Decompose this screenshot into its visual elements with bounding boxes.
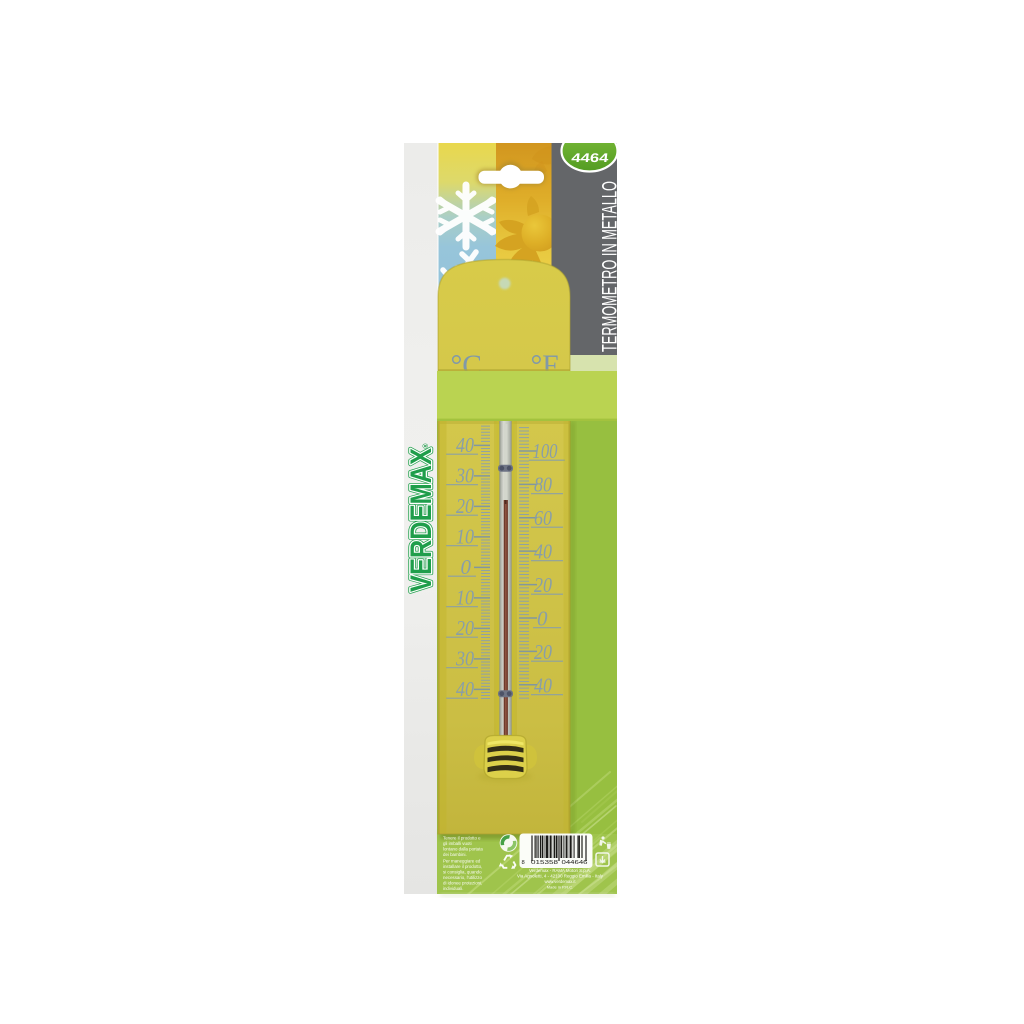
svg-text:30: 30 — [455, 647, 474, 671]
svg-text:4464: 4464 — [571, 151, 610, 165]
svg-text:Made in P.R.C.: Made in P.R.C. — [547, 885, 574, 890]
svg-text:40: 40 — [456, 433, 474, 457]
svg-text:80: 80 — [534, 473, 552, 497]
svg-text:40: 40 — [456, 677, 474, 701]
svg-text:015358: 015358 — [531, 860, 558, 866]
svg-text:20: 20 — [456, 494, 474, 518]
svg-text:lontano dalla portata: lontano dalla portata — [443, 847, 483, 852]
svg-text:40: 40 — [534, 674, 552, 698]
svg-text:Via Agnoletti, 4 - 42100 Reggi: Via Agnoletti, 4 - 42100 Reggio Emilia -… — [517, 874, 604, 879]
svg-text:20: 20 — [456, 616, 474, 640]
svg-text:100: 100 — [533, 439, 558, 463]
svg-text:Verdemax - RAMA Motori S.p.A.: Verdemax - RAMA Motori S.p.A. — [529, 868, 591, 873]
svg-text:40: 40 — [534, 540, 552, 564]
svg-text:60: 60 — [534, 506, 552, 530]
svg-text:Tenere il prodotto e: Tenere il prodotto e — [443, 836, 481, 841]
svg-text:20: 20 — [534, 573, 552, 597]
svg-text:TERMOMETRO IN METALLO: TERMOMETRO IN METALLO — [599, 181, 622, 352]
svg-text:si consiglia, quando: si consiglia, quando — [443, 870, 482, 875]
svg-text:10: 10 — [456, 525, 474, 549]
svg-text:VERDEMAX: VERDEMAX — [405, 448, 438, 592]
svg-text:0: 0 — [461, 555, 472, 579]
svg-text:dei bambini.: dei bambini. — [443, 852, 467, 857]
svg-text:individuali.: individuali. — [443, 886, 464, 891]
svg-text:di idonee protezioni,: di idonee protezioni, — [443, 881, 482, 886]
svg-text:®: ® — [422, 443, 430, 449]
svg-text:10: 10 — [456, 586, 474, 610]
svg-text:gli imballi vuoti: gli imballi vuoti — [443, 841, 472, 846]
svg-text:necessario, l'utilizzo: necessario, l'utilizzo — [443, 875, 482, 880]
svg-text:installare il prodotto,: installare il prodotto, — [443, 864, 482, 869]
svg-text:0: 0 — [537, 607, 548, 631]
svg-text:www.verdemax.it: www.verdemax.it — [545, 879, 577, 884]
svg-text:20: 20 — [534, 640, 552, 664]
svg-text:Per maneggiare ed: Per maneggiare ed — [443, 859, 481, 864]
svg-text:8: 8 — [522, 860, 525, 866]
svg-text:30: 30 — [455, 464, 474, 488]
svg-text:044646: 044646 — [562, 860, 588, 866]
